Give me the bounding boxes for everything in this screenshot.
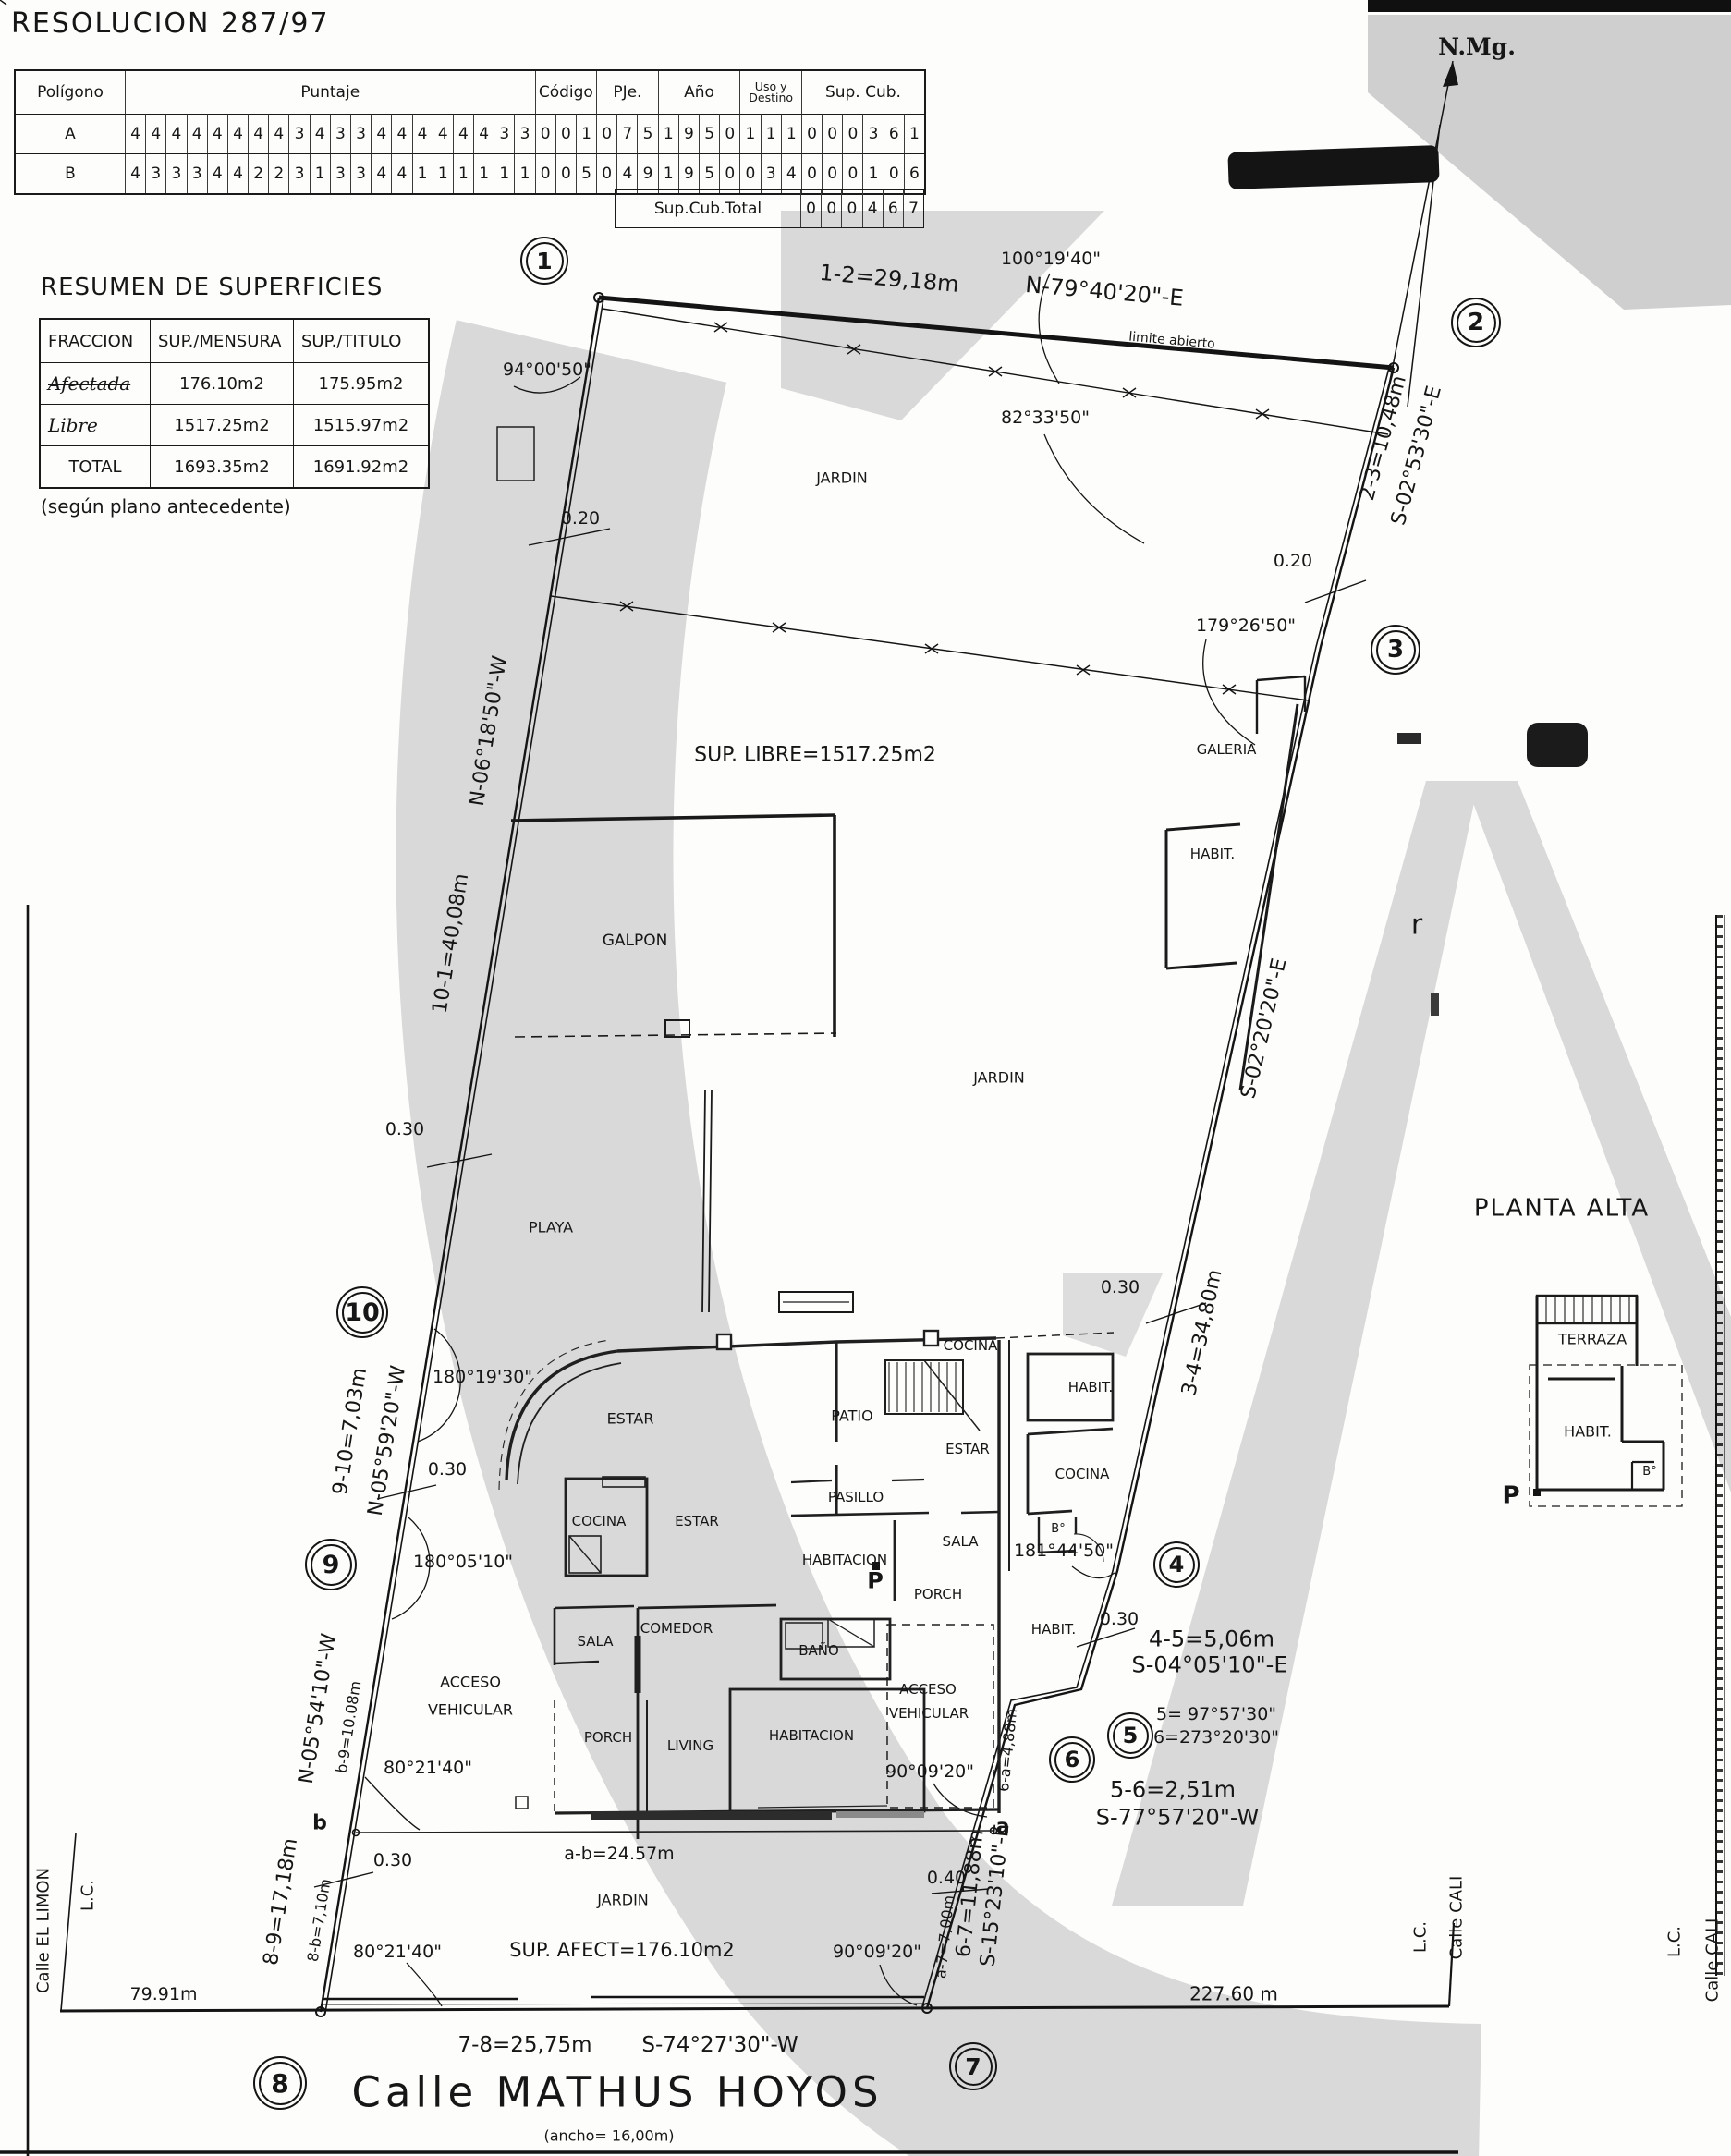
digit-cell: 4	[227, 114, 248, 153]
label-d030_910: 0.30	[428, 1461, 467, 1480]
digit-cell: 1	[473, 153, 494, 193]
vertex-number: 5	[1113, 1718, 1149, 1754]
digit-cell: 3	[187, 153, 207, 193]
resumen-header-mensura: SUP./MENSURA	[150, 320, 293, 362]
col-codigo: Código	[535, 71, 597, 114]
label-d7991: 79.91m	[130, 1986, 198, 2004]
digit-cell: 0	[739, 153, 760, 193]
total-digit: 4	[862, 190, 883, 227]
digit-cell: 3	[288, 114, 309, 153]
resumen-row-libre-name: Libre	[41, 404, 150, 445]
total-digit: 7	[903, 190, 923, 227]
vertex-6: 6	[1049, 1736, 1095, 1783]
label-jardin_bot: JARDIN	[597, 1894, 649, 1909]
label-ang_6: 6=273°20'30"	[1153, 1729, 1279, 1748]
digit-cell: 4	[371, 153, 391, 193]
label-brg_4_5: S-04°05'10"-E	[1132, 1653, 1288, 1676]
digit-cell: 3	[165, 153, 186, 193]
digit-cell: 4	[207, 114, 227, 153]
vertex-5: 5	[1107, 1712, 1153, 1759]
label-sala_c: SALA	[942, 1535, 978, 1550]
digit-cell: 0	[801, 114, 822, 153]
digit-cell: 4	[453, 114, 473, 153]
label-sup_afect: SUP. AFECT=176.10m2	[509, 1940, 735, 1960]
digit-cell: 4	[207, 153, 227, 193]
label-ang_179: 179°26'50"	[1196, 617, 1296, 636]
digit-cell: 4	[187, 114, 207, 153]
label-dim_4_5: 4-5=5,06m	[1149, 1627, 1274, 1650]
digit-cell: 0	[555, 153, 576, 193]
label-cocina_l: COCINA	[572, 1515, 627, 1529]
digit-cell: 6	[904, 153, 924, 193]
digit-cell: 5	[576, 153, 596, 193]
planta-alta-plan	[1530, 1296, 1682, 1506]
label-ang_5: 5= 97°57'30"	[1156, 1706, 1276, 1724]
digit-cell: 2	[248, 153, 268, 193]
digit-cell: 0	[555, 114, 576, 153]
page-title: RESOLUCION 287/97	[11, 9, 330, 39]
label-dim_5_6: 5-6=2,51m	[1110, 1778, 1236, 1801]
digit-cell: 0	[884, 153, 904, 193]
vertex-4: 4	[1153, 1541, 1200, 1588]
label-dim_7_8: 7-8=25,75m	[457, 2034, 591, 2056]
row-poligono: B	[16, 153, 125, 193]
label-lc_r: L.C.	[1667, 1926, 1685, 1957]
digit-cell: 5	[699, 114, 719, 153]
digit-cell: 1	[412, 153, 433, 193]
label-habit_pa: HABIT.	[1564, 1425, 1612, 1441]
label-ang_90u: 90°09'20"	[885, 1763, 974, 1782]
resumen-row-total-name: TOTAL	[41, 445, 150, 487]
vertex-number: 3	[1376, 630, 1416, 670]
digit-cell: 4	[125, 114, 145, 153]
label-bano: BAÑO	[798, 1644, 839, 1659]
digit-cell: 3	[330, 114, 350, 153]
vertex-number: 9	[311, 1544, 352, 1586]
total-digit: 0	[800, 190, 821, 227]
digit-cell: 0	[535, 114, 555, 153]
digit-cell: 1	[453, 153, 473, 193]
label-lc_l: L.C.	[80, 1880, 98, 1911]
digit-cell: 4	[391, 114, 411, 153]
score-table: PolígonoPuntajeCódigoPJe.AñoUso y Destin…	[14, 69, 926, 195]
label-d22760: 227.60 m	[1189, 1985, 1278, 2004]
label-ang_18005: 180°05'10"	[413, 1553, 513, 1572]
resumen-row-afectada-mensura: 176.10m2	[150, 362, 293, 404]
label-ang_80l: 80°21'40"	[353, 1943, 442, 1962]
digit-cell: 4	[248, 114, 268, 153]
digit-cell: 1	[514, 153, 534, 193]
label-ang_100: 100°19'40"	[1001, 250, 1101, 269]
label-playa: PLAYA	[529, 1221, 573, 1236]
resumen-table: FRACCION SUP./MENSURA SUP./TITULO Afecta…	[39, 318, 430, 489]
label-lc_jog: L.C.	[1413, 1921, 1431, 1953]
digit-cell: 0	[719, 114, 739, 153]
digit-cell: 4	[781, 153, 801, 193]
vertex-8: 8	[253, 2056, 307, 2110]
vertex-number: 1	[526, 242, 564, 280]
label-b_letter: b	[312, 1812, 327, 1833]
total-digit: 0	[821, 190, 841, 227]
col-pje: PJe.	[596, 71, 658, 114]
digit-cell: 4	[145, 114, 165, 153]
label-ang_80u: 80°21'40"	[384, 1760, 472, 1778]
digit-cell: 3	[761, 153, 781, 193]
label-porch_l: PORCH	[584, 1731, 632, 1746]
digit-cell: 3	[862, 114, 883, 153]
digit-cell: 3	[350, 114, 371, 153]
digit-cell: 3	[494, 114, 514, 153]
vertex-number: 7	[955, 2048, 993, 2086]
resumen-row-total-titulo: 1691.92m2	[293, 445, 428, 487]
digit-cell: 3	[288, 153, 309, 193]
vertex-number: 4	[1159, 1547, 1195, 1583]
digit-cell: 4	[125, 153, 145, 193]
label-cocina_top: COCINA	[944, 1339, 998, 1354]
col-puntaje: Puntaje	[125, 71, 535, 114]
resumen-row-afectada-titulo: 175.95m2	[293, 362, 428, 404]
label-estar_big: ESTAR	[607, 1412, 654, 1428]
label-estar_c: ESTAR	[675, 1515, 719, 1529]
digit-cell: 6	[884, 114, 904, 153]
label-patio: PATIO	[831, 1409, 872, 1425]
label-jardin_top: JARDIN	[816, 471, 868, 487]
col-uso-destino: Uso y Destino	[739, 71, 801, 114]
digit-cell: 4	[371, 114, 391, 153]
survey-plan-sheet: RESOLUCION 287/97 PolígonoPuntajeCódigoP…	[0, 0, 1731, 2156]
label-d030_34: 0.30	[1101, 1279, 1140, 1297]
digit-cell: 9	[637, 153, 657, 193]
label-comedor: COMEDOR	[640, 1622, 713, 1637]
col-sup-cub: Sup. Cub.	[801, 71, 924, 114]
vertex-10: 10	[336, 1286, 388, 1338]
label-galpon: GALPON	[603, 933, 668, 950]
label-habitacion_l: HABITACION	[802, 1553, 887, 1568]
digit-cell: 4	[391, 153, 411, 193]
digit-cell: 0	[719, 153, 739, 193]
digit-cell: 4	[616, 153, 637, 193]
vertex-2: 2	[1451, 298, 1501, 347]
label-d030_playa: 0.30	[385, 1121, 424, 1139]
label-brg_7_8: S-74°27'30"-W	[641, 2034, 798, 2056]
row-poligono: A	[16, 114, 125, 153]
label-cocina_r: COCINA	[1055, 1468, 1110, 1482]
digit-cell: 4	[268, 114, 288, 153]
label-estar_r: ESTAR	[945, 1443, 990, 1457]
digit-cell: 1	[658, 114, 678, 153]
label-ab: a-b=24.57m	[564, 1845, 674, 1864]
label-habitacion_c: HABITACION	[769, 1729, 854, 1744]
label-pasillo: PASILLO	[828, 1491, 884, 1505]
label-r_mark: r	[1411, 910, 1422, 940]
label-street: Calle MATHUS HOYOS	[351, 2070, 883, 2113]
resumen-title: RESUMEN DE SUPERFICIES	[41, 275, 383, 300]
digit-cell: 3	[350, 153, 371, 193]
label-ang_90l: 90°09'20"	[833, 1943, 921, 1962]
digit-cell: 1	[862, 153, 883, 193]
label-acceso_l2: VEHICULAR	[428, 1703, 513, 1719]
digit-cell: 4	[412, 114, 433, 153]
digit-cell: 5	[637, 114, 657, 153]
label-d020_l: 0.20	[561, 510, 600, 529]
label-cali_jog: Calle CALI	[1449, 1876, 1467, 1960]
total-digit: 0	[841, 190, 861, 227]
digit-cell: 2	[268, 153, 288, 193]
resumen-row-afectada-name: Afectada	[41, 362, 150, 404]
vertex-number: 8	[259, 2062, 302, 2105]
label-ang_94: 94°00'50"	[503, 361, 591, 380]
digit-cell: 1	[494, 153, 514, 193]
digit-cell: 4	[165, 114, 186, 153]
label-pa_title: PLANTA ALTA	[1474, 1196, 1650, 1221]
label-habit_galeria: HABIT.	[1190, 847, 1235, 862]
label-b_main: B°	[1051, 1523, 1065, 1536]
col-poligono: Polígono	[16, 71, 125, 114]
resumen-row-libre-titulo: 1515.97m2	[293, 404, 428, 445]
label-ang_181: 181°44'50"	[1014, 1542, 1114, 1561]
digit-cell: 3	[145, 153, 165, 193]
label-cali_r: Calle CALI	[1705, 1918, 1723, 2003]
label-habit_low: HABIT.	[1031, 1623, 1076, 1638]
resumen-row-libre-mensura: 1517.25m2	[150, 404, 293, 445]
label-acceso_r2: VEHICULAR	[889, 1707, 969, 1722]
digit-cell: 0	[535, 153, 555, 193]
label-ang_82: 82°33'50"	[1001, 409, 1090, 428]
vertex-number: 6	[1054, 1742, 1091, 1778]
digit-cell: 0	[822, 153, 842, 193]
label-ancho: (ancho= 16,00m)	[543, 2129, 674, 2145]
vertex-9: 9	[305, 1539, 357, 1590]
label-galeria: GALERIA	[1197, 743, 1257, 758]
label-brg_5_6: S-77°57'20"-W	[1096, 1806, 1260, 1829]
digit-cell: 0	[842, 153, 862, 193]
label-d020_r: 0.20	[1274, 553, 1312, 571]
total-digit: 6	[883, 190, 903, 227]
digit-cell: 0	[801, 153, 822, 193]
digit-cell: 1	[658, 153, 678, 193]
label-sala_l: SALA	[577, 1635, 613, 1650]
label-ang_18019: 180°19'30"	[433, 1369, 532, 1387]
digit-cell: 1	[904, 114, 924, 153]
label-acceso_l1: ACCESO	[440, 1675, 501, 1691]
digit-cell: 5	[699, 153, 719, 193]
label-jardin_mid: JARDIN	[973, 1071, 1025, 1087]
label-sup_libre: SUP. LIBRE=1517.25m2	[694, 744, 936, 765]
label-habit_r: HABIT.	[1068, 1381, 1113, 1395]
digit-cell: 9	[678, 114, 699, 153]
label-porch_r: PORCH	[914, 1588, 962, 1602]
vertex-number: 2	[1457, 303, 1496, 343]
vertex-3: 3	[1371, 625, 1420, 675]
label-d030_45: 0.30	[1100, 1611, 1139, 1629]
resumen-header-titulo: SUP./TITULO	[293, 320, 428, 362]
vertex-7: 7	[949, 2042, 997, 2090]
label-terraza: TERRAZA	[1558, 1333, 1627, 1348]
digit-cell: 0	[596, 114, 616, 153]
digit-cell: 4	[433, 114, 453, 153]
digit-cell: 0	[822, 114, 842, 153]
vertex-1: 1	[520, 237, 568, 285]
digit-cell: 4	[310, 114, 330, 153]
score-table-total: Sup.Cub.Total000467	[615, 189, 924, 228]
label-living: LIVING	[667, 1739, 713, 1754]
digit-cell: 4	[227, 153, 248, 193]
digit-cell: 1	[310, 153, 330, 193]
digit-cell: 3	[514, 114, 534, 153]
col-ano: Año	[658, 71, 740, 114]
digit-cell: 0	[842, 114, 862, 153]
digit-cell: 1	[761, 114, 781, 153]
digit-cell: 9	[678, 153, 699, 193]
resumen-note: (según plano antecedente)	[41, 497, 291, 517]
resumen-header-fraccion: FRACCION	[41, 320, 150, 362]
label-acceso_r1: ACCESO	[899, 1683, 957, 1698]
digit-cell: 7	[616, 114, 637, 153]
resumen-row-total-mensura: 1693.35m2	[150, 445, 293, 487]
digit-cell: 1	[576, 114, 596, 153]
digit-cell: 1	[739, 114, 760, 153]
digit-cell: 1	[433, 153, 453, 193]
digit-cell: 3	[330, 153, 350, 193]
total-label: Sup.Cub.Total	[616, 190, 800, 227]
vertex-number: 10	[342, 1292, 384, 1334]
digit-cell: 4	[473, 114, 494, 153]
digit-cell: 1	[781, 114, 801, 153]
label-calle_limon: Calle EL LIMON	[36, 1868, 54, 1993]
label-p_main: P	[867, 1569, 884, 1592]
label-p_pa: P	[1502, 1483, 1519, 1508]
digit-cell: 0	[596, 153, 616, 193]
label-nmg: N.Mg.	[1438, 35, 1516, 59]
label-b_pa: B°	[1642, 1466, 1656, 1479]
label-d030_b: 0.30	[373, 1852, 412, 1870]
